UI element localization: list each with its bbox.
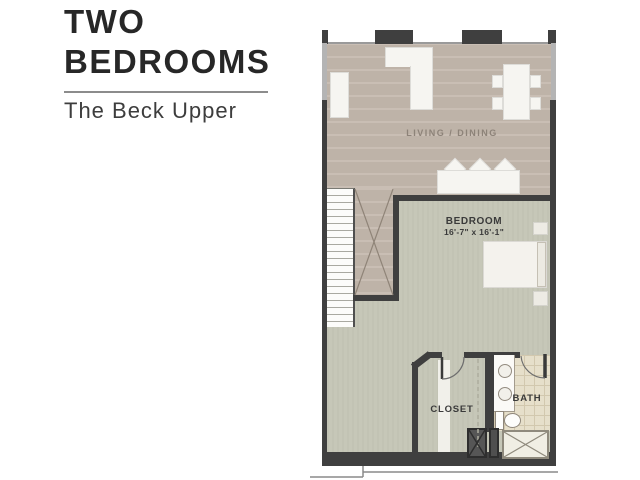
window-left [322,43,327,100]
closet-wall-left [412,362,418,452]
wall-top-segment-2 [462,30,502,44]
page-title: TWO BEDROOMS [64,2,270,82]
dining-chair [530,97,541,110]
wall-right [550,100,556,466]
page-title-line-1: TWO [64,2,270,42]
nightstand [533,222,548,235]
kitchen-counter-top [385,47,433,67]
bedroom-wall-bottom-left [353,295,399,301]
floorplan-canvas: LIVING / DINING BEDROOM 16'-7" x 16'-1" … [320,28,560,478]
bedroom-wall-top [393,195,556,201]
sideboard [330,72,349,118]
bedroom-wall-left [393,195,399,301]
closet-bath-divider-wall [485,352,494,432]
plan-name-subtitle: The Beck Upper [64,98,237,124]
wall-top-stub-left [322,30,328,44]
open-to-below-area [355,188,393,295]
title-divider [64,91,268,93]
sink [498,364,512,378]
living-dining-label: LIVING / DINING [406,128,498,138]
shower [502,430,549,459]
closet-label: CLOSET [430,404,473,415]
wall-left [322,100,327,466]
bedroom-label: BEDROOM [446,216,502,227]
page-title-line-2: BEDROOMS [64,42,270,82]
dining-table [503,64,530,120]
dining-chair [530,75,541,88]
bedroom-dimensions-label: 16'-7" x 16'-1" [444,227,504,237]
dining-chair [492,75,503,88]
dining-chair [492,97,503,110]
sink [498,387,512,401]
closet-wall-top-1 [428,352,442,358]
wall-top-stub-right [548,30,556,44]
toilet-bowl [504,413,521,428]
couch [437,170,520,194]
bed-headboard [537,242,546,287]
window-right [551,43,556,100]
mechanical-chase [489,428,499,458]
nightstand [533,291,548,306]
window-sill-line [322,42,556,44]
floorplan-page: { "panel": { "title_line1": "TWO", "titl… [0,0,640,480]
wall-top-segment-1 [375,30,413,44]
kitchen-counter-side [410,66,433,110]
water-heater [467,428,487,458]
bath-label: BATH [513,393,542,404]
staircase [326,188,355,327]
